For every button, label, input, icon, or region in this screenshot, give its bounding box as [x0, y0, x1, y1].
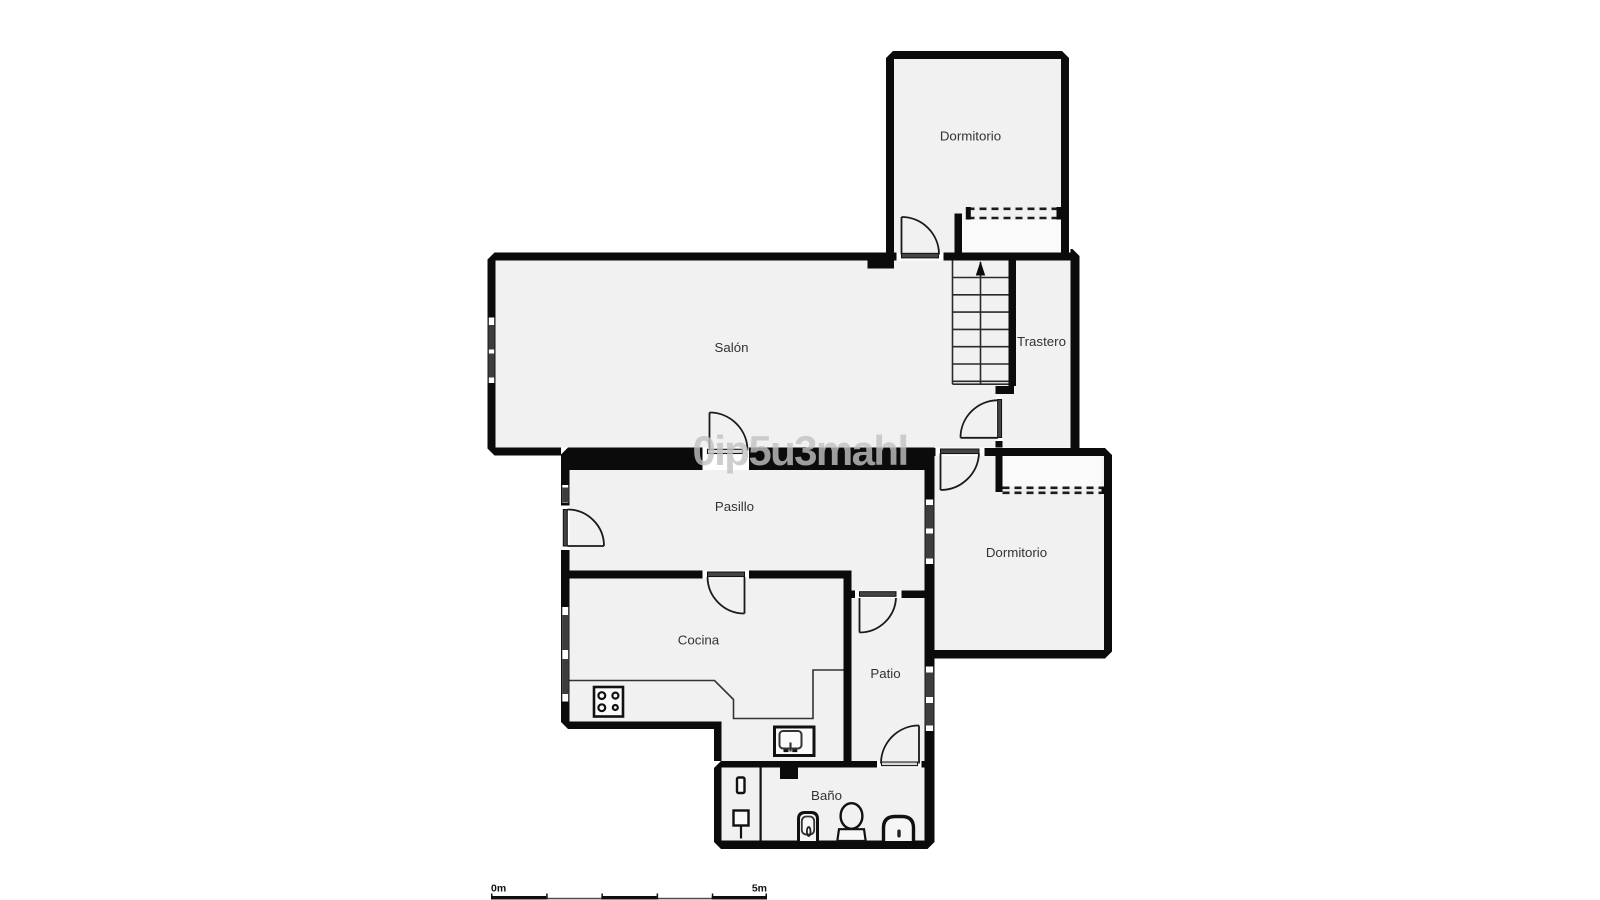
svg-text:0m: 0m [491, 883, 506, 895]
svg-text:Cocina: Cocina [678, 633, 720, 648]
svg-text:Patio: Patio [870, 666, 900, 681]
svg-text:5m: 5m [752, 883, 767, 895]
svg-text:0ip5u3mahl: 0ip5u3mahl [692, 427, 907, 474]
svg-text:Salón: Salón [714, 340, 748, 355]
svg-text:Pasillo: Pasillo [715, 499, 754, 514]
svg-text:Trastero: Trastero [1017, 334, 1066, 349]
svg-text:Baño: Baño [811, 788, 842, 803]
svg-text:Dormitorio: Dormitorio [940, 129, 1001, 144]
svg-text:Dormitorio: Dormitorio [986, 545, 1047, 560]
